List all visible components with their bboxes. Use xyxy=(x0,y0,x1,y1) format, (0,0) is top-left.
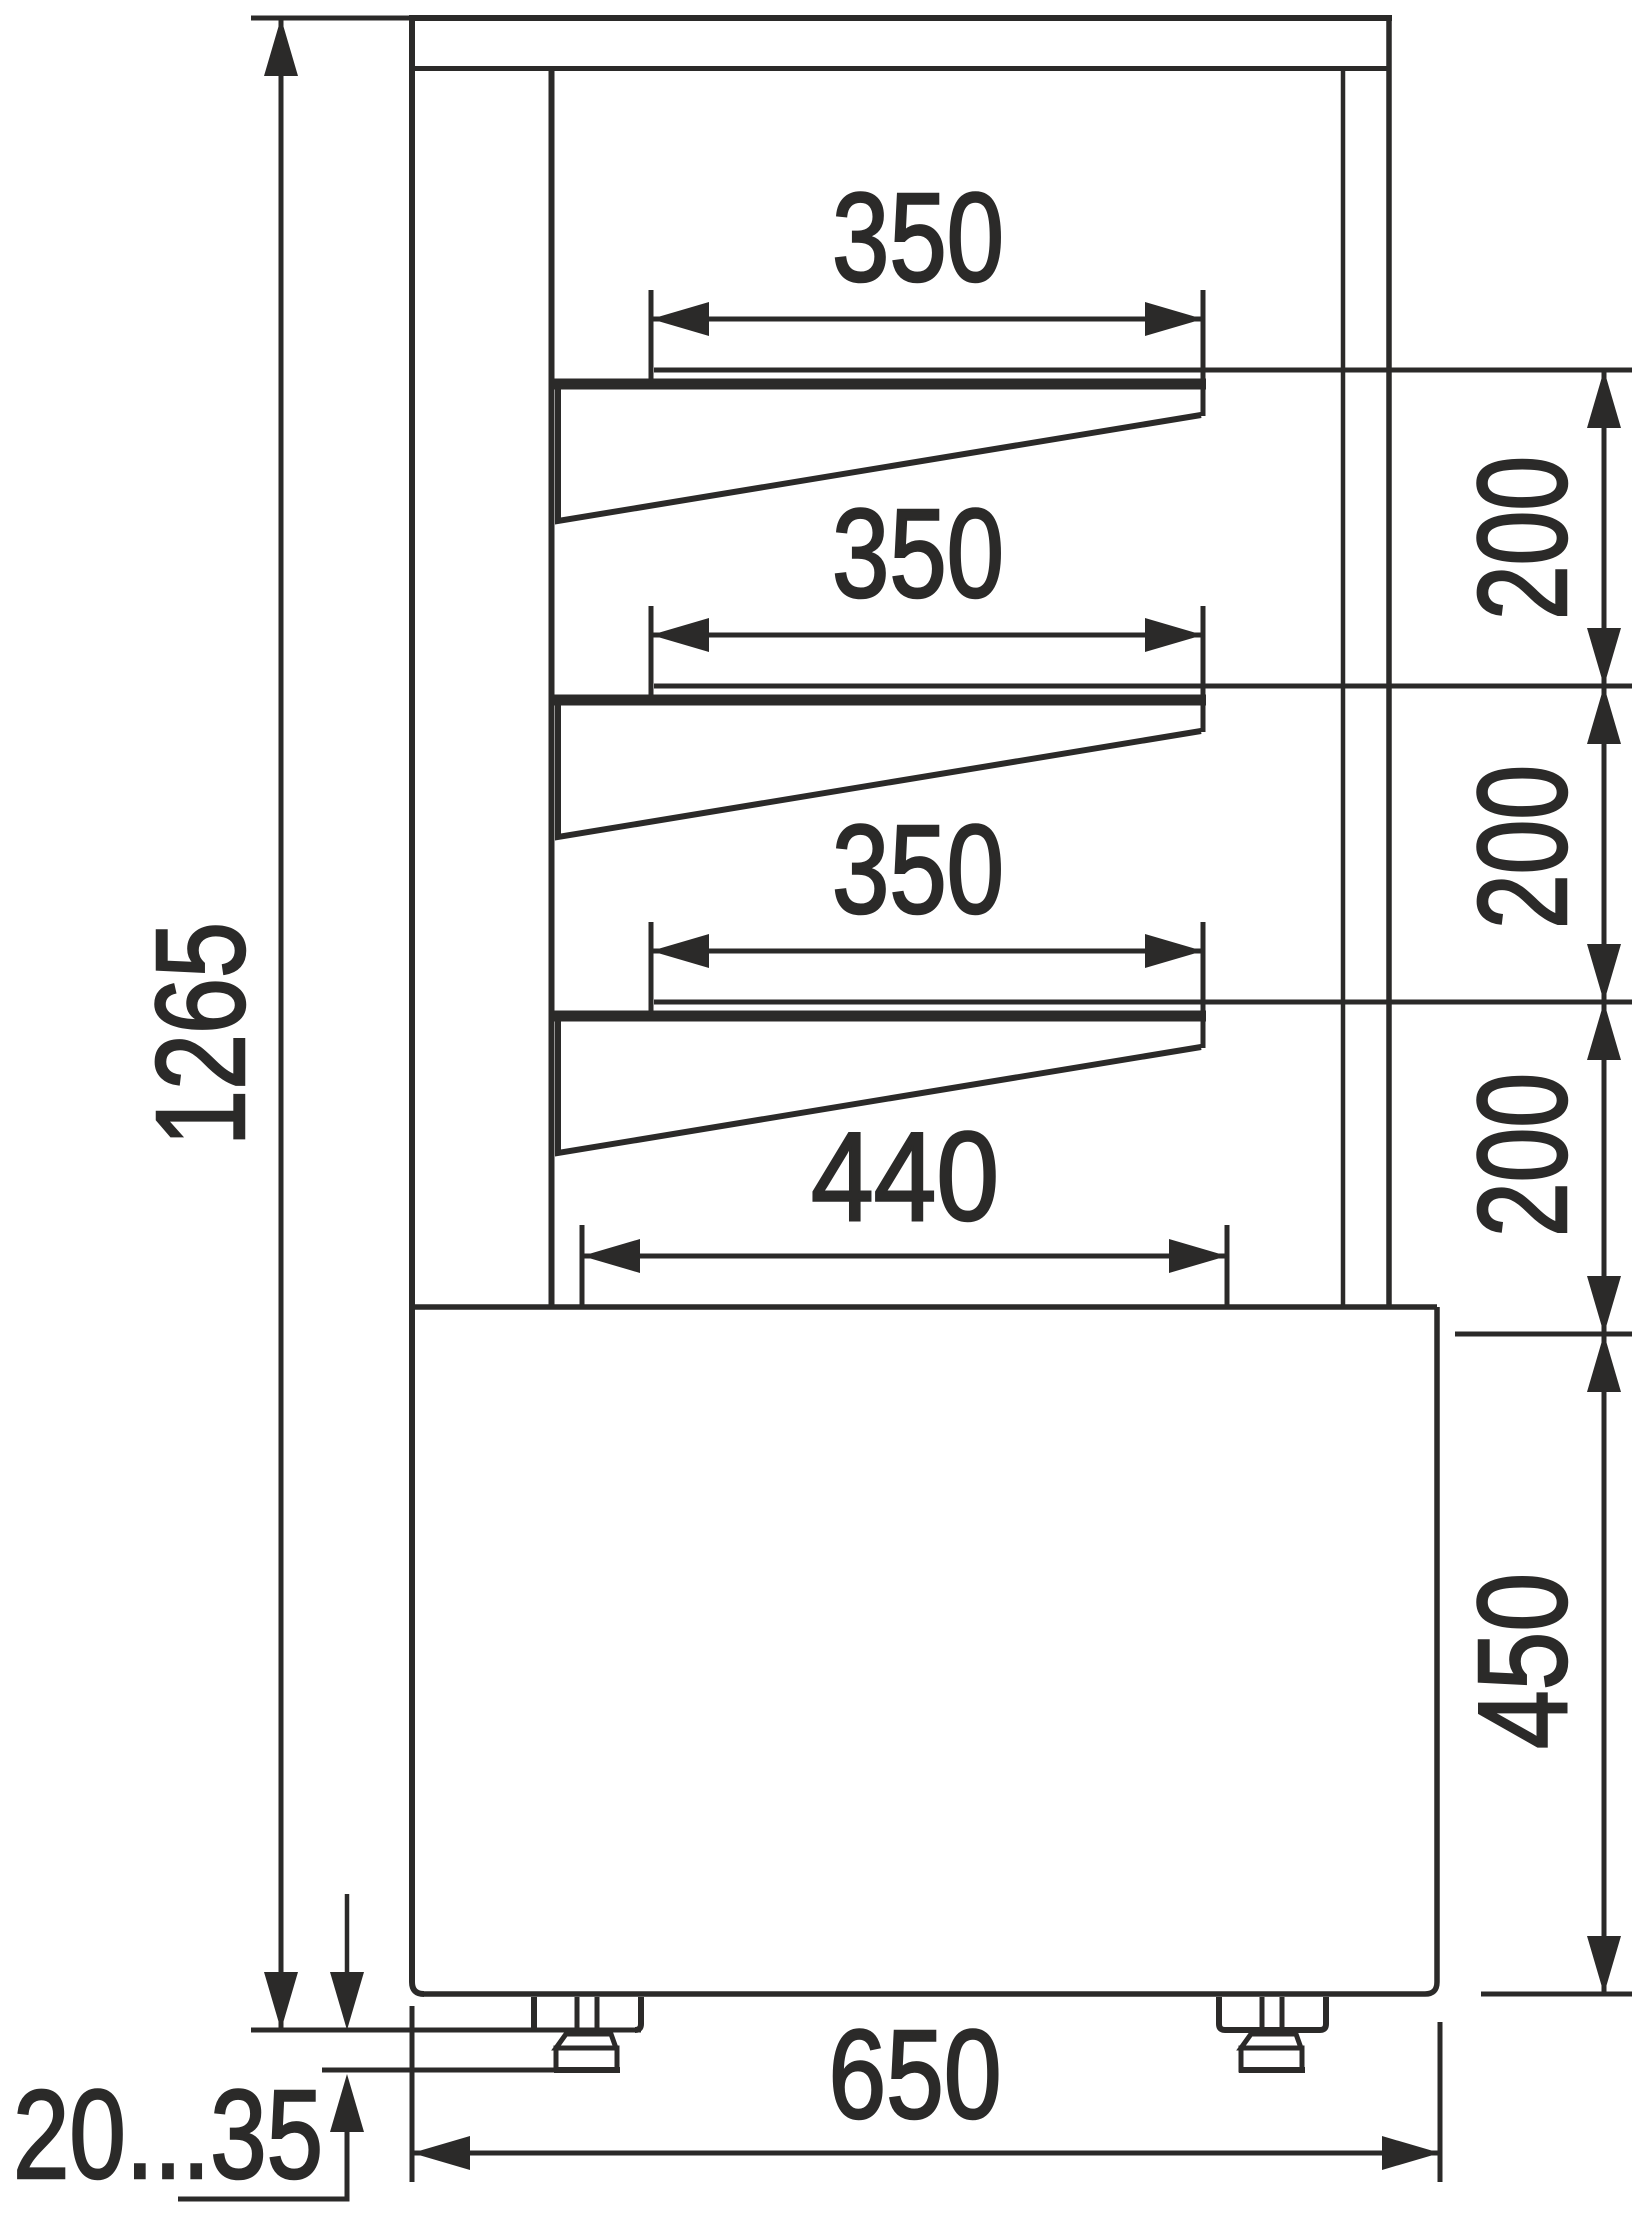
svg-text:1265: 1265 xyxy=(130,922,271,1146)
svg-text:350: 350 xyxy=(832,799,1004,940)
svg-text:350: 350 xyxy=(832,483,1004,624)
svg-text:650: 650 xyxy=(829,2004,1002,2145)
svg-text:350: 350 xyxy=(832,167,1004,308)
svg-text:450: 450 xyxy=(1452,1573,1593,1749)
svg-text:440: 440 xyxy=(811,1106,999,1247)
svg-text:200: 200 xyxy=(1452,765,1593,929)
svg-text:200: 200 xyxy=(1452,1073,1593,1237)
svg-text:20...35: 20...35 xyxy=(13,2064,323,2205)
svg-text:200: 200 xyxy=(1452,456,1593,620)
